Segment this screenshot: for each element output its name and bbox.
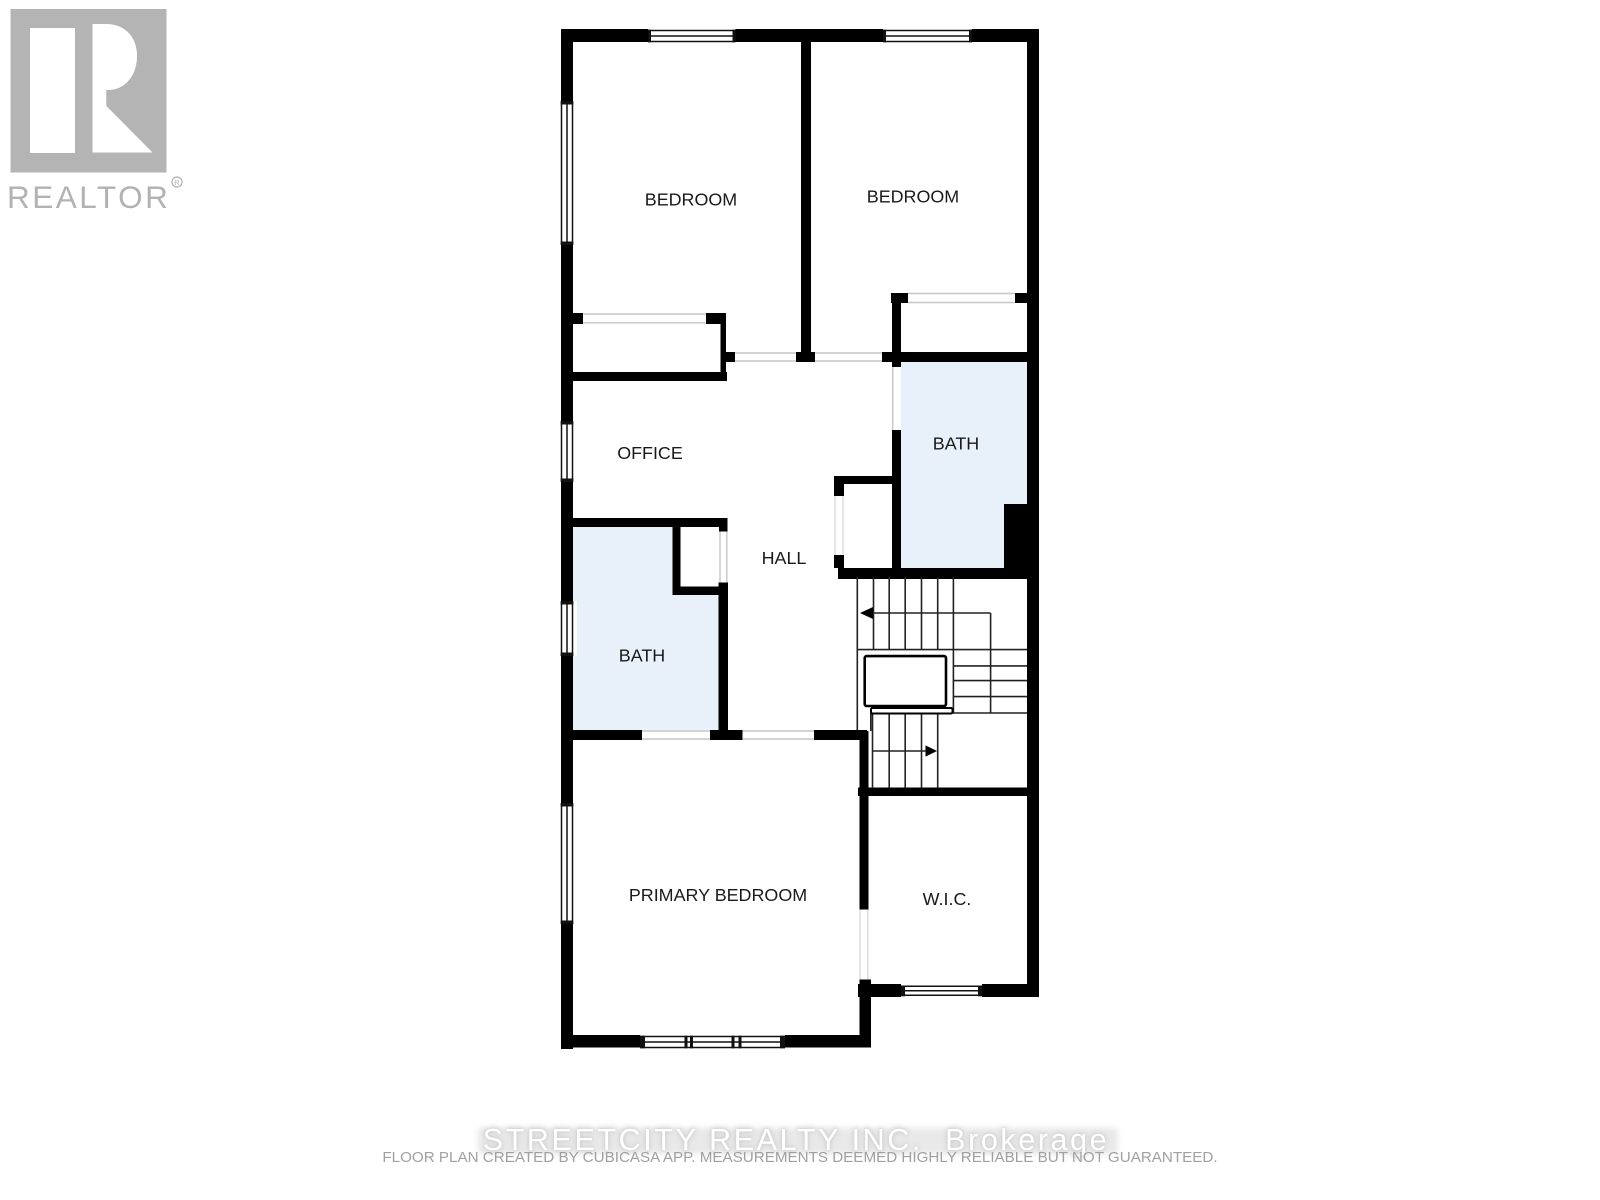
svg-text:BATH: BATH xyxy=(933,434,979,454)
svg-text:R: R xyxy=(174,178,180,187)
svg-text:REALTOR: REALTOR xyxy=(7,179,170,215)
svg-text:HALL: HALL xyxy=(762,548,807,568)
svg-text:OFFICE: OFFICE xyxy=(617,443,683,463)
svg-text:BATH: BATH xyxy=(619,645,665,665)
svg-text:PRIMARY BEDROOM: PRIMARY BEDROOM xyxy=(629,885,807,905)
svg-text:BEDROOM: BEDROOM xyxy=(867,187,959,207)
svg-text:W.I.C.: W.I.C. xyxy=(923,889,972,909)
svg-text:BEDROOM: BEDROOM xyxy=(645,190,737,210)
